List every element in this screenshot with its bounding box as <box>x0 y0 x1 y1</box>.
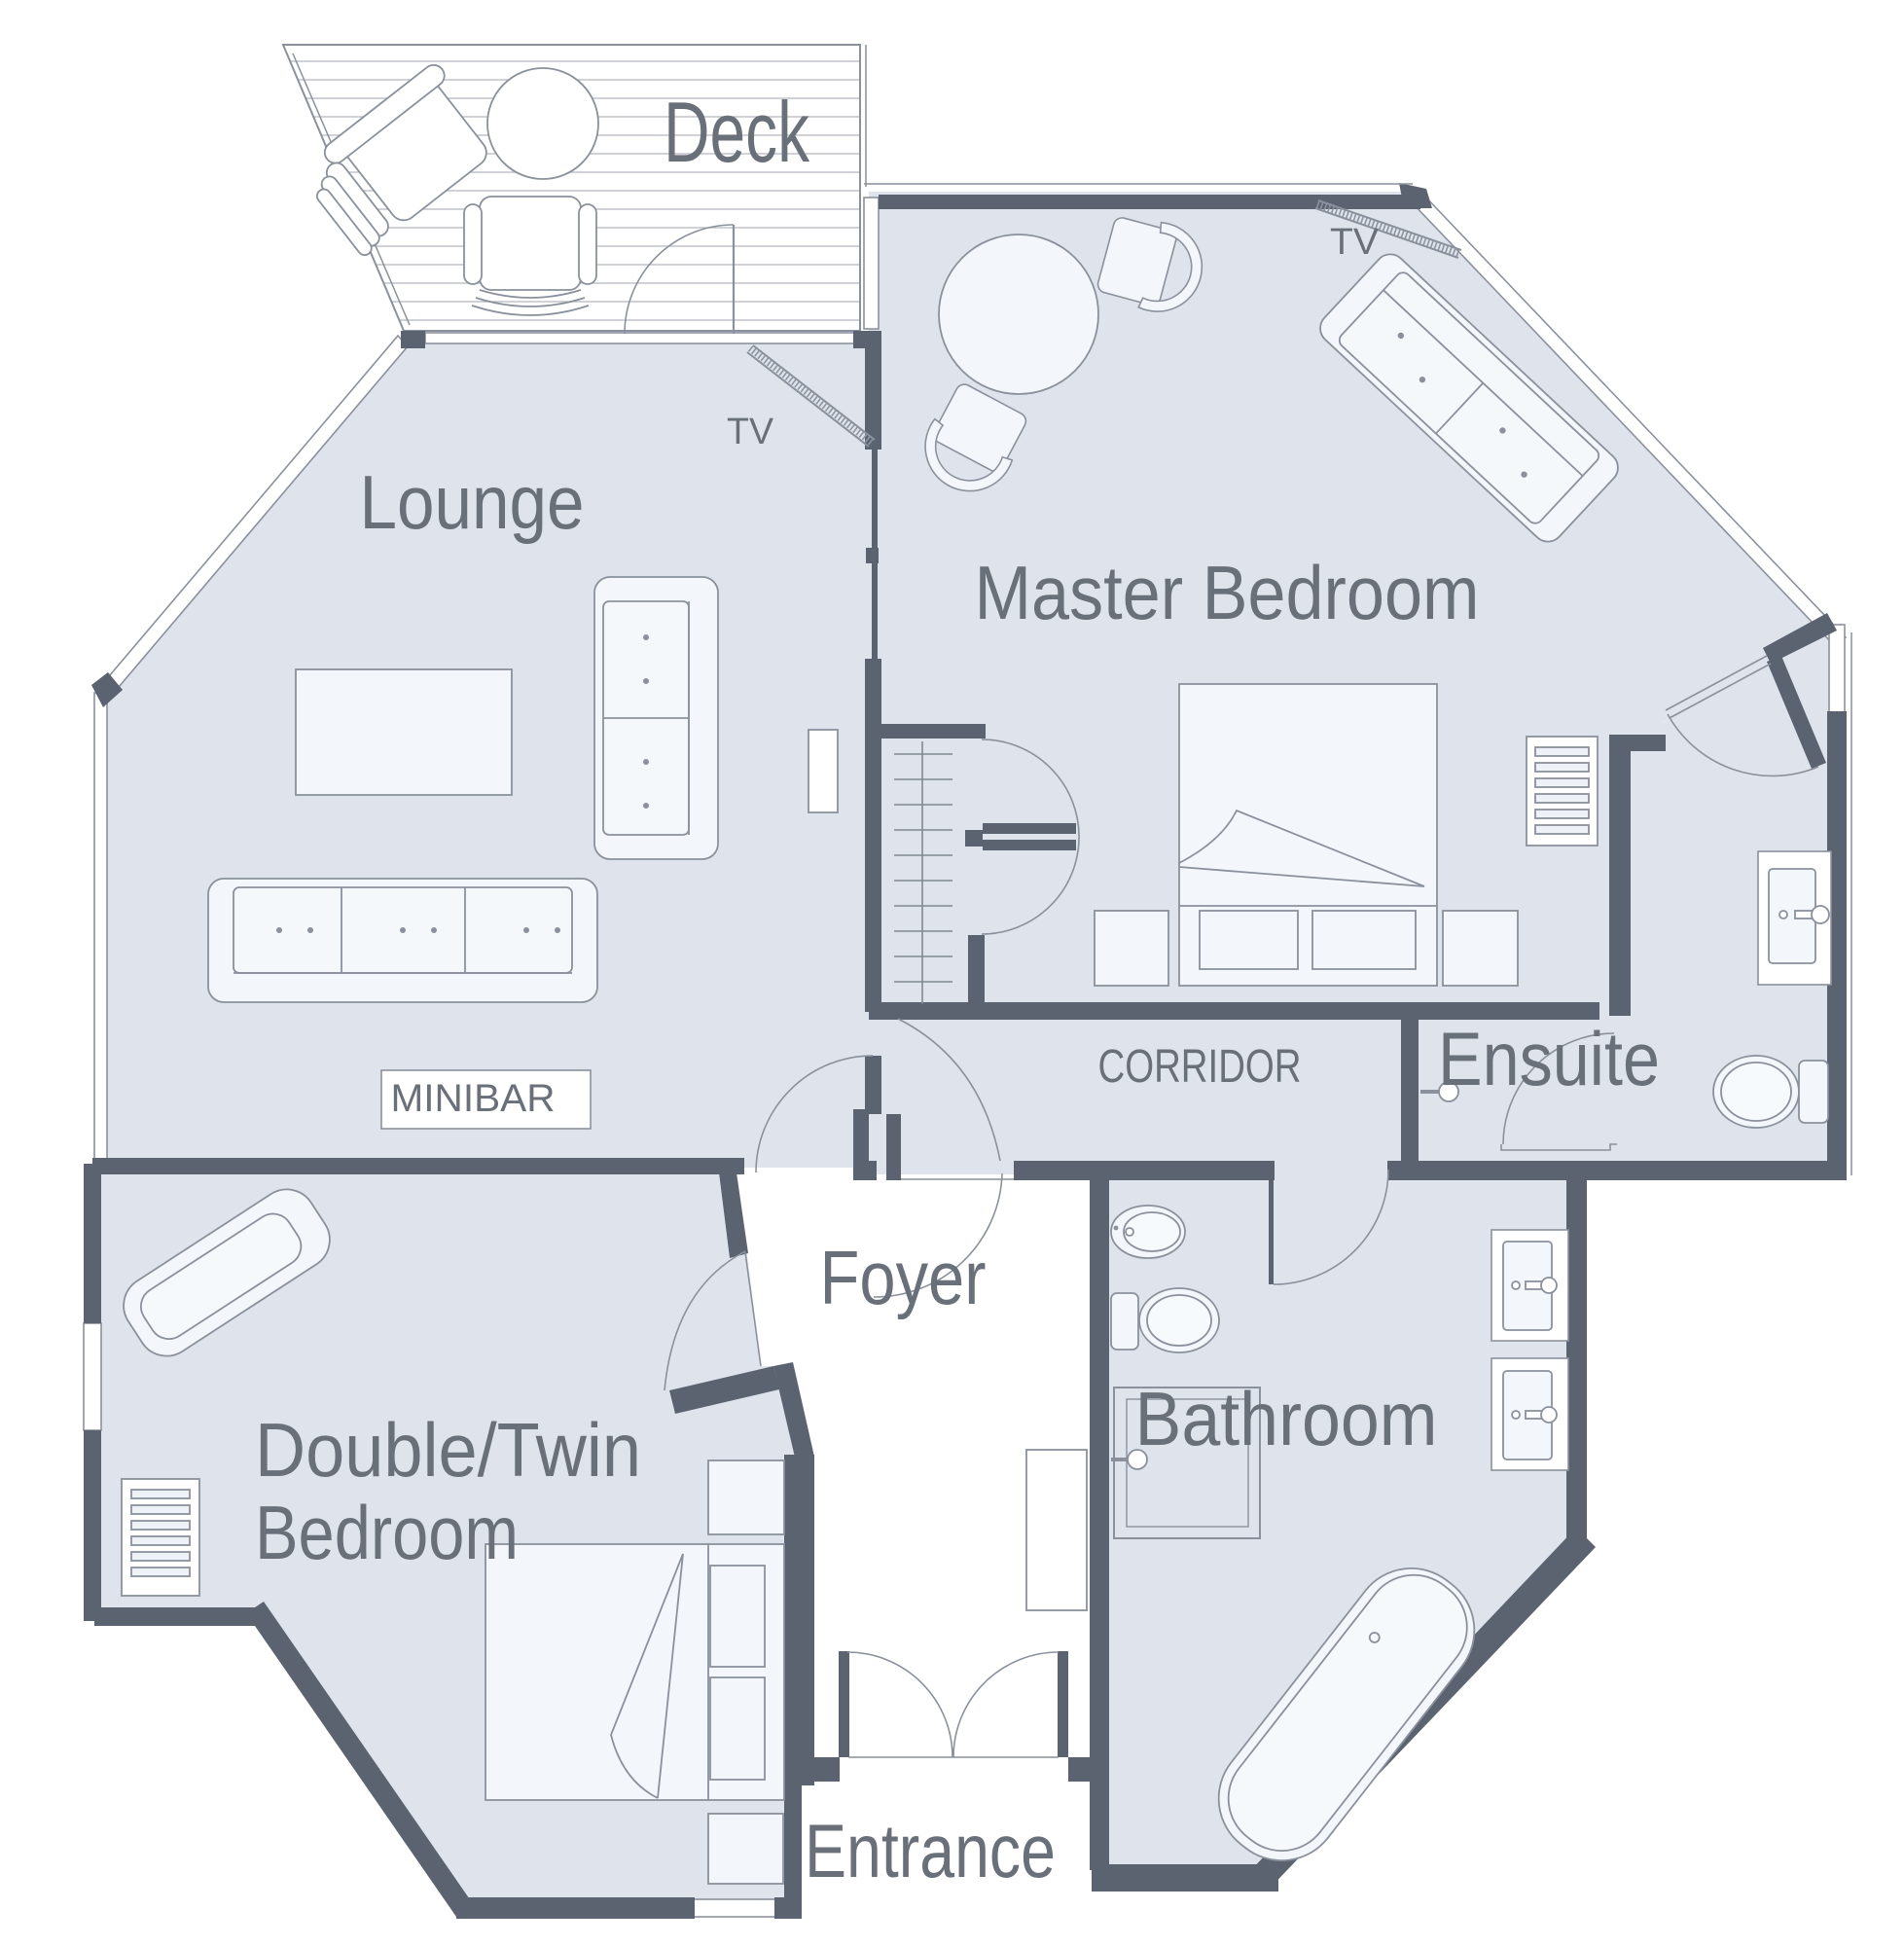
svg-text:MINIBAR: MINIBAR <box>391 1077 556 1120</box>
svg-text:Foyer: Foyer <box>820 1235 987 1320</box>
svg-text:Entrance: Entrance <box>805 1808 1056 1893</box>
svg-text:Deck: Deck <box>664 84 810 180</box>
svg-text:CORRIDOR: CORRIDOR <box>1098 1041 1302 1093</box>
svg-text:Double/Twin: Double/Twin <box>255 1407 641 1493</box>
svg-text:TV: TV <box>727 412 774 452</box>
svg-text:Lounge: Lounge <box>360 459 585 545</box>
svg-text:Master Bedroom: Master Bedroom <box>975 550 1480 635</box>
svg-text:TV: TV <box>1330 222 1380 263</box>
svg-text:Bedroom: Bedroom <box>255 1490 519 1575</box>
svg-text:Ensuite: Ensuite <box>1438 1016 1660 1101</box>
svg-text:Bathroom: Bathroom <box>1135 1376 1438 1461</box>
